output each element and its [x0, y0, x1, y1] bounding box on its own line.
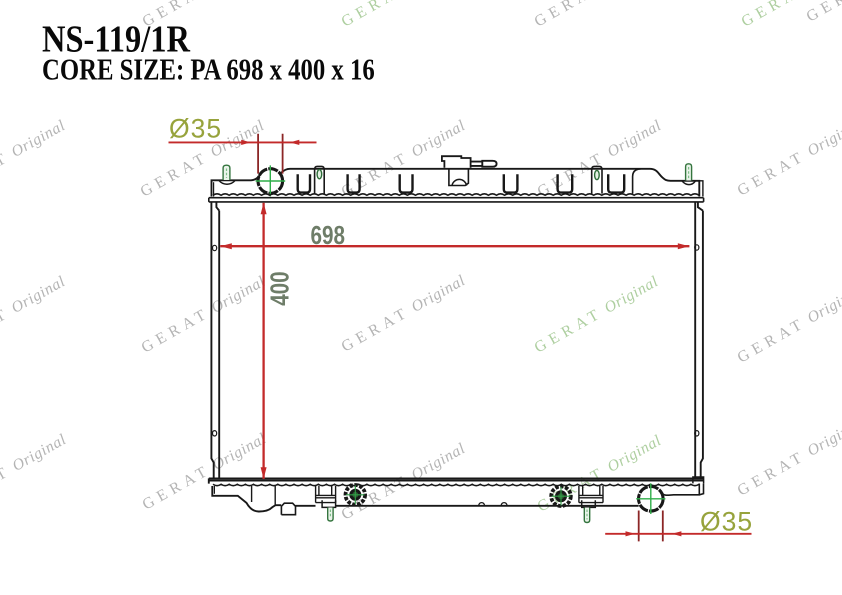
svg-text:CORE SIZE: PA 698 x 400 x 16: CORE SIZE: PA 698 x 400 x 16	[42, 53, 375, 87]
svg-text:400: 400	[265, 271, 294, 305]
svg-text:Ø35: Ø35	[169, 114, 222, 144]
svg-text:Ø35: Ø35	[700, 507, 753, 537]
svg-text:698: 698	[311, 221, 345, 250]
